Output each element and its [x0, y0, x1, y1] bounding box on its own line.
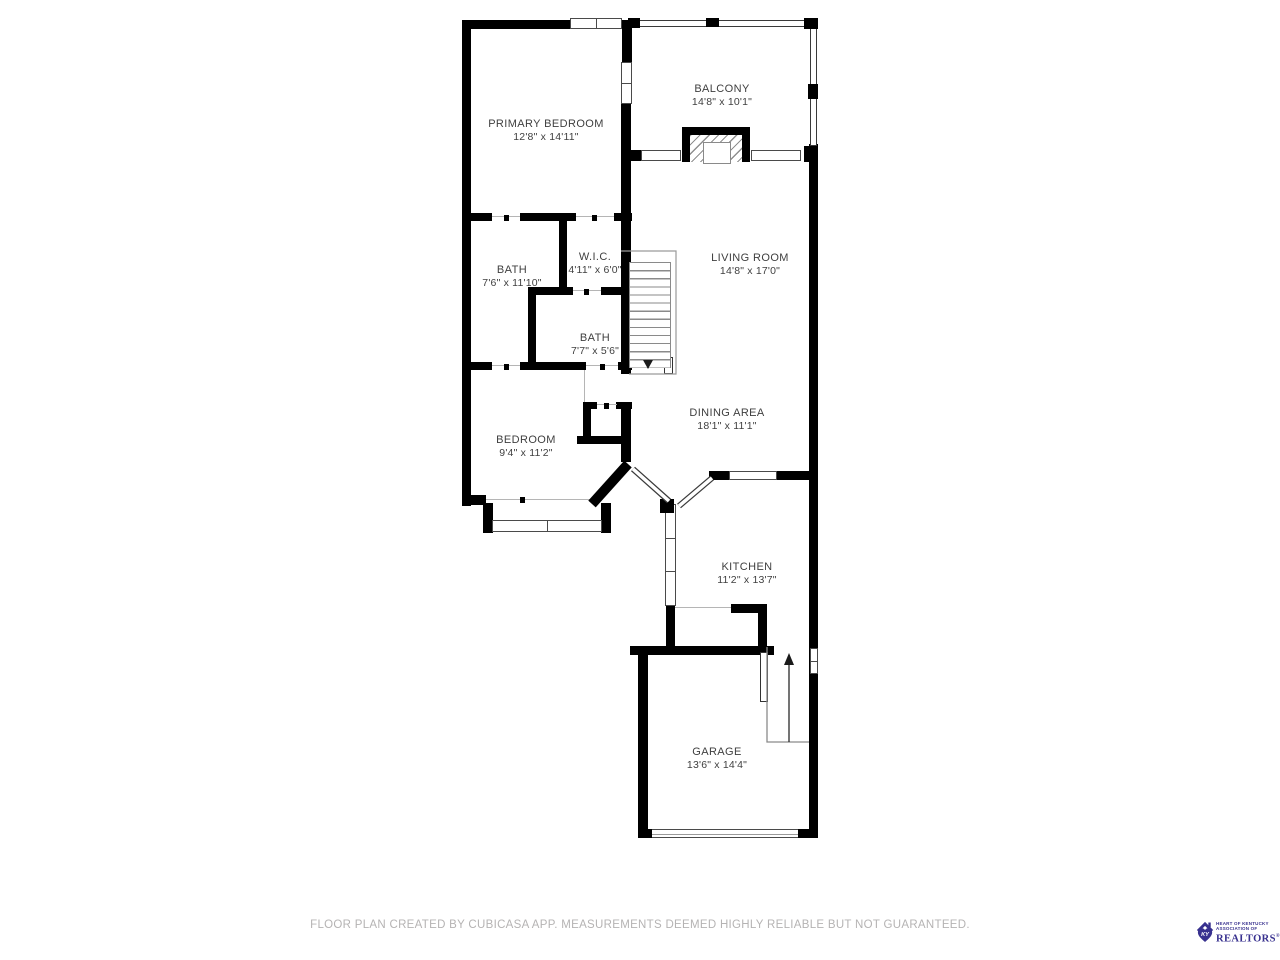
room-label-primary-bedroom: PRIMARY BEDROOM 12'8" x 14'11"	[488, 118, 604, 143]
window	[751, 150, 801, 161]
room-name: BATH	[482, 264, 541, 276]
railing-post	[804, 18, 818, 29]
room-label-balcony: BALCONY 14'8" x 10'1"	[692, 83, 752, 108]
side-door	[810, 648, 818, 674]
realtor-association-logo: KY HEART OF KENTUCKY ASSOCIATION OF REAL…	[1196, 908, 1280, 958]
dimension-tick	[466, 487, 471, 493]
railing-post	[628, 18, 640, 28]
wall-segment	[462, 213, 492, 221]
garage-door	[652, 829, 798, 838]
room-dims: 12'8" x 14'11"	[488, 131, 604, 143]
logo-monogram: KY	[1201, 932, 1210, 938]
dimension-tick	[504, 364, 509, 370]
fireplace-icon	[682, 127, 750, 162]
room-label-bedroom: BEDROOM 9'4" x 11'2"	[496, 434, 556, 459]
wall-segment	[809, 144, 818, 838]
room-dims: 18'1" x 11'1"	[689, 420, 764, 432]
room-dims: 7'6" x 11'10"	[482, 277, 541, 289]
entry-arrow	[784, 653, 794, 742]
wall-segment	[577, 436, 626, 444]
dimension-tick	[545, 24, 551, 29]
wall-segment	[601, 503, 611, 533]
room-dims: 11'2" x 13'7"	[717, 574, 776, 586]
staircase	[629, 262, 671, 368]
room-label-living-room: LIVING ROOM 14'8" x 17'0"	[711, 252, 789, 277]
window	[570, 18, 622, 29]
dimension-tick	[584, 289, 589, 295]
room-dims: 7'7" x 5'6"	[571, 345, 619, 357]
window	[665, 504, 676, 606]
room-label-garage: GARAGE 13'6" x 14'4"	[687, 746, 747, 771]
railing-post	[660, 499, 674, 513]
ky-heart-house-icon: KY	[1196, 908, 1214, 956]
wall-segment	[520, 213, 576, 221]
balcony-door	[641, 150, 681, 161]
room-name: BALCONY	[692, 83, 752, 95]
room-name: BATH	[571, 332, 619, 344]
balcony-railing	[810, 20, 817, 146]
wall-segment	[528, 287, 536, 369]
diagonal-wall	[592, 464, 628, 504]
railing-post	[706, 18, 719, 27]
balcony-railing	[632, 20, 818, 27]
room-dims: 14'8" x 10'1"	[692, 96, 752, 108]
dimension-tick	[600, 364, 605, 370]
wall-segment	[462, 495, 486, 505]
dimension-tick	[604, 403, 609, 409]
window	[729, 471, 777, 480]
door-leaf	[760, 652, 768, 702]
room-name: KITCHEN	[717, 561, 776, 573]
railing-post	[804, 146, 818, 162]
room-dims: 13'6" x 14'4"	[687, 759, 747, 771]
wall-segment	[614, 213, 632, 221]
room-label-bath-2: BATH 7'7" x 5'6"	[571, 332, 619, 357]
room-dims: 14'8" x 17'0"	[711, 265, 789, 277]
floor-plan-canvas: PRIMARY BEDROOM 12'8" x 14'11" BALCONY 1…	[0, 0, 1280, 960]
wall-segment	[630, 646, 774, 655]
wall-opening	[584, 370, 585, 402]
railing-post	[808, 84, 818, 99]
room-dims: 9'4" x 11'2"	[496, 447, 556, 459]
logo-text: HEART OF KENTUCKY ASSOCIATION OF REALTOR…	[1216, 908, 1280, 946]
wall-segment	[520, 362, 586, 370]
room-dims: 4'11" x 6'0"	[568, 264, 621, 276]
wall-segment	[583, 402, 597, 409]
room-name: W.I.C.	[568, 251, 621, 263]
wall-opening	[486, 499, 602, 500]
dimension-tick	[592, 215, 597, 221]
wall-segment	[709, 471, 729, 480]
wall-segment	[777, 471, 809, 480]
wall-segment	[666, 604, 675, 650]
door-opening	[675, 607, 731, 608]
wall-segment	[621, 402, 631, 462]
room-label-dining-area: DINING AREA 18'1" x 11'1"	[689, 407, 764, 432]
room-label-bath-1: BATH 7'6" x 11'10"	[482, 264, 541, 289]
window	[621, 62, 632, 104]
wall-segment	[638, 646, 648, 838]
logo-realtors: REALTORS®	[1216, 931, 1280, 946]
room-name: LIVING ROOM	[711, 252, 789, 264]
room-name: PRIMARY BEDROOM	[488, 118, 604, 130]
dimension-tick	[466, 238, 471, 244]
room-name: DINING AREA	[689, 407, 764, 419]
garage-stair-lines	[767, 647, 809, 742]
room-label-kitchen: KITCHEN 11'2" x 13'7"	[717, 561, 776, 586]
wall-segment	[601, 287, 630, 295]
room-name: BEDROOM	[496, 434, 556, 446]
bay-window	[492, 520, 602, 532]
registered-mark: ®	[1276, 934, 1280, 939]
wall-segment	[559, 217, 567, 293]
room-label-wic: W.I.C. 4'11" x 6'0"	[568, 251, 621, 276]
wall-segment	[462, 362, 492, 370]
room-name: GARAGE	[687, 746, 747, 758]
firebox	[703, 142, 731, 164]
dimension-tick	[811, 338, 817, 343]
dimension-tick	[520, 497, 525, 503]
wall-segment	[628, 150, 642, 161]
footer-disclaimer: FLOOR PLAN CREATED BY CUBICASA APP. MEAS…	[0, 919, 1280, 931]
wall-segment	[462, 20, 471, 506]
dimension-tick	[504, 215, 509, 221]
